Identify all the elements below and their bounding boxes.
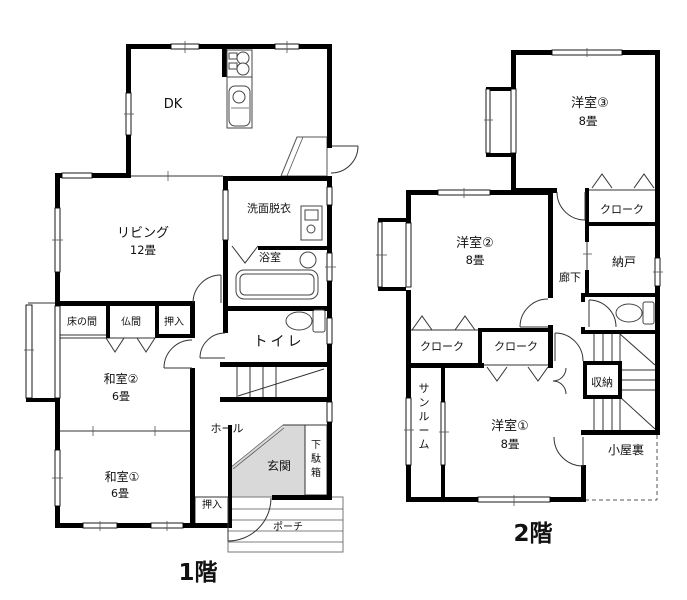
label-washitsu2-size: 6畳 (112, 390, 130, 403)
floor1-plan: DK リビング 12畳 洗面脱衣 浴室 トイレ 床の間 仏間 押入 和室② 6畳… (24, 41, 358, 586)
washbasin-icon (301, 206, 322, 240)
floor1-title: 1階 (178, 560, 217, 586)
label-living: リビング (117, 226, 169, 241)
label-yoshitsu3: 洋室③ (571, 95, 609, 111)
label-tokonoma: 床の間 (67, 315, 97, 328)
stairs-1f (237, 366, 324, 397)
floorplan-svg: DK リビング 12畳 洗面脱衣 浴室 トイレ 床の間 仏間 押入 和室② 6畳… (0, 0, 687, 600)
label-washitsu2: 和室② (104, 371, 139, 386)
kitchen-step (281, 137, 327, 176)
label-roka: 廊下 (559, 270, 581, 284)
label-yoshitsu2: 洋室② (456, 235, 494, 251)
label-bath: 浴室 (259, 250, 281, 264)
label-nando: 納戸 (612, 255, 636, 269)
label-oshiire-bottom: 押入 (202, 498, 222, 511)
floor2-title: 2階 (513, 521, 552, 547)
label-toilet-1f: トイレ (254, 334, 305, 350)
label-koyaura: 小屋裏 (608, 442, 644, 457)
label-shuno: 収納 (591, 376, 613, 389)
label-yoshitsu3-size: 8畳 (579, 114, 598, 128)
fixtures-1f (227, 50, 325, 332)
label-living-size: 12畳 (130, 243, 156, 257)
label-butsuma: 仏間 (121, 316, 141, 328)
label-getabako: 下駄箱 (311, 440, 321, 479)
label-genkan: 玄関 (267, 458, 291, 473)
label-porch: ポーチ (273, 521, 303, 533)
label-yoshitsu1: 洋室① (491, 418, 529, 434)
kitchen-unit-icon (227, 50, 252, 128)
label-cloak-top: クローク (600, 203, 644, 216)
floor2-plan: 洋室③ 8畳 クローク 納戸 廊下 洋室② 8畳 クローク クローク 収納 サン… (376, 48, 663, 547)
toilet-1f-icon (286, 310, 325, 332)
labels-2f: 洋室③ 8畳 クローク 納戸 廊下 洋室② 8畳 クローク クローク 収納 サン… (419, 95, 645, 547)
label-oshiire-top: 押入 (164, 315, 184, 328)
label-washroom: 洗面脱衣 (247, 201, 291, 215)
label-sunroom: サンルーム (419, 382, 430, 451)
label-washitsu1-size: 6畳 (111, 487, 129, 500)
label-hall: ホール (211, 422, 244, 435)
label-cloak-left: クローク (420, 340, 464, 353)
label-dk: DK (164, 97, 183, 112)
toilet-2f-icon (616, 302, 654, 324)
label-cloak-right: クローク (494, 340, 538, 353)
floorplan-page: DK リビング 12畳 洗面脱衣 浴室 トイレ 床の間 仏間 押入 和室② 6畳… (0, 0, 687, 600)
label-yoshitsu2-size: 8畳 (466, 253, 485, 267)
label-washitsu1: 和室① (105, 469, 140, 484)
doors-2f (412, 174, 654, 466)
label-yoshitsu1-size: 8畳 (501, 437, 520, 451)
fixtures-2f (616, 302, 654, 324)
